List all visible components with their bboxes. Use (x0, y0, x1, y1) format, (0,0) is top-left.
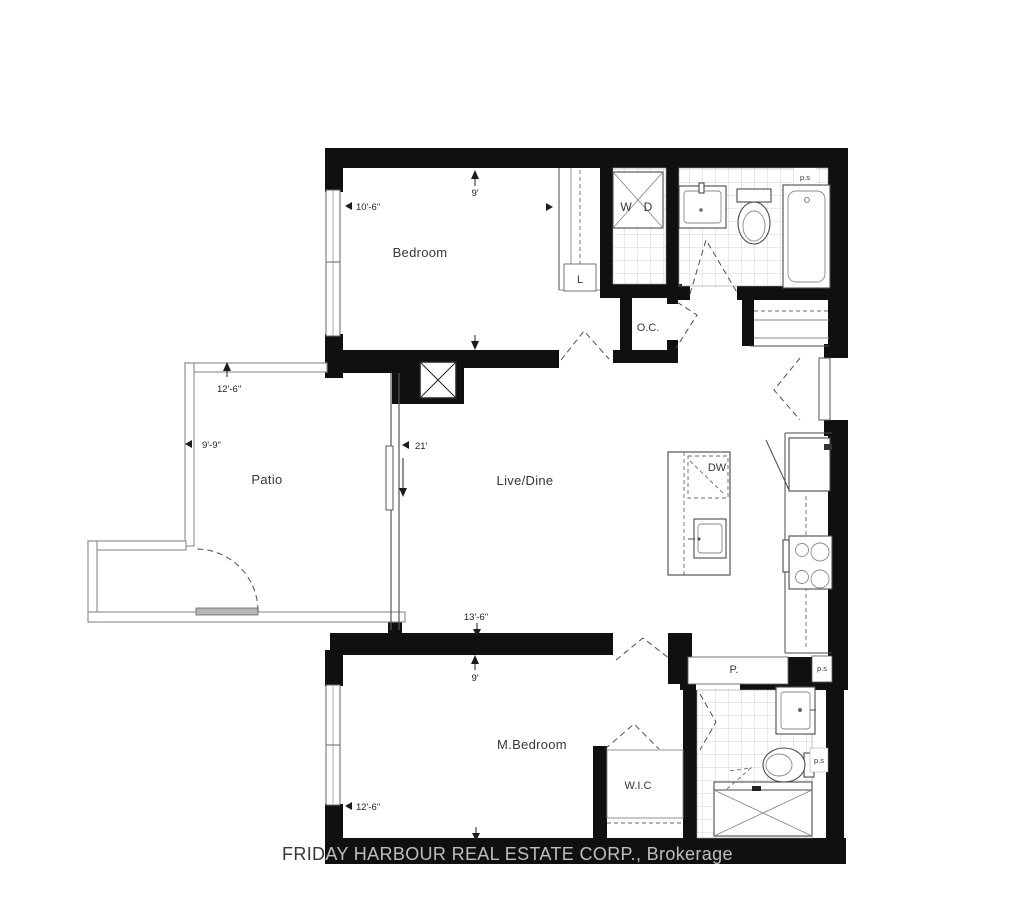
linen-closet: L (559, 168, 600, 291)
kitchen: DW P. p.s (668, 433, 832, 684)
ensuite-toilet (763, 748, 814, 782)
master-width-dim: 12'-6" (356, 802, 380, 813)
pipe-space-label-kitchen: p.s (817, 664, 827, 673)
live-dine-length-dim: 21' (415, 441, 428, 452)
patio-depth-dim: 9'-9" (202, 440, 221, 451)
master-bedroom-window (326, 685, 340, 805)
shaft-column (420, 362, 456, 398)
patio-width-dim: 12'-6" (217, 384, 241, 395)
stove-cooktop (783, 536, 832, 589)
live-dine-label: Live/Dine (497, 473, 554, 488)
patio-rail-extension-left (88, 541, 97, 622)
entry-door-swing (774, 358, 800, 420)
fridge (766, 438, 832, 491)
entry (750, 311, 830, 420)
pantry: P. (688, 657, 788, 684)
live-dine-length-arrow (402, 441, 409, 449)
pantry-label: P. (730, 664, 739, 676)
live-dine-window-wall (386, 373, 407, 630)
bedroom-depth-arrow-top (471, 170, 479, 179)
patio-rail-extension-top (88, 541, 186, 550)
bedroom-depth-dim: 9' (471, 188, 478, 199)
master-bedroom: M.Bedroom 9' 12'-6" (326, 638, 670, 841)
linen-closet-label: L (577, 274, 583, 286)
entry-door-leaf (819, 358, 830, 420)
master-width-arrow (345, 802, 352, 810)
pipe-space-label-bath: p.s (800, 173, 810, 182)
patio-label: Patio (251, 472, 282, 487)
entry-closet-shelves (750, 311, 829, 346)
bedroom-width-arrow-right (546, 203, 553, 211)
ensuite-vanity-sink (776, 687, 816, 734)
master-bedroom-label: M.Bedroom (497, 737, 567, 752)
master-bedroom-door-swing (616, 638, 670, 660)
walk-in-closet: W.I.C (605, 724, 683, 823)
kitchen-island: DW (668, 452, 730, 575)
bedroom-window (326, 190, 340, 336)
bedroom-width-dim: 10'-6" (356, 202, 380, 213)
walk-in-closet-door-swing (605, 724, 659, 749)
bedroom-door-swing (561, 331, 609, 360)
island-sink (688, 519, 726, 558)
oc-closet-label: O.C. (637, 322, 660, 334)
oc-closet: O.C. (632, 298, 697, 350)
bathtub (783, 185, 830, 288)
floor-plan-drawing: Patio 12'-6" 9'-9" Bedroom 10'-6" 9' L (0, 0, 1027, 916)
master-depth-dim: 9' (471, 673, 478, 684)
patio-gate-swing (196, 549, 258, 611)
oc-closet-door-swing (676, 302, 697, 348)
pipe-space-label-ensuite: p.s (814, 756, 824, 765)
live-dine-width-dim: 13'-6" (464, 612, 488, 623)
toilet (737, 189, 771, 244)
walk-in-closet-label: W.I.C (625, 780, 652, 792)
brokerage-watermark: FRIDAY HARBOUR REAL ESTATE CORP., Broker… (282, 844, 733, 865)
floor-plan-page: Patio 12'-6" 9'-9" Bedroom 10'-6" 9' L (0, 0, 1027, 916)
washer-label: W (620, 200, 632, 214)
dryer-label: D (644, 200, 653, 214)
bedroom-label: Bedroom (393, 245, 448, 260)
patio: Patio 12'-6" 9'-9" (88, 362, 405, 622)
bedroom-depth-arrow-bottom (471, 341, 479, 350)
laundry-closet: W D (613, 172, 663, 228)
patio-rail-top (185, 363, 327, 372)
sliding-door-panel (386, 446, 393, 510)
patio-gate-leaf (196, 608, 258, 615)
dishwasher-label: DW (708, 462, 727, 474)
master-depth-arrow-top (471, 655, 479, 664)
bedroom-width-arrow-left (345, 202, 352, 210)
patio-rail-left (185, 363, 194, 546)
bathroom-vanity-sink (679, 183, 726, 228)
sliding-door-arrow (399, 488, 407, 497)
